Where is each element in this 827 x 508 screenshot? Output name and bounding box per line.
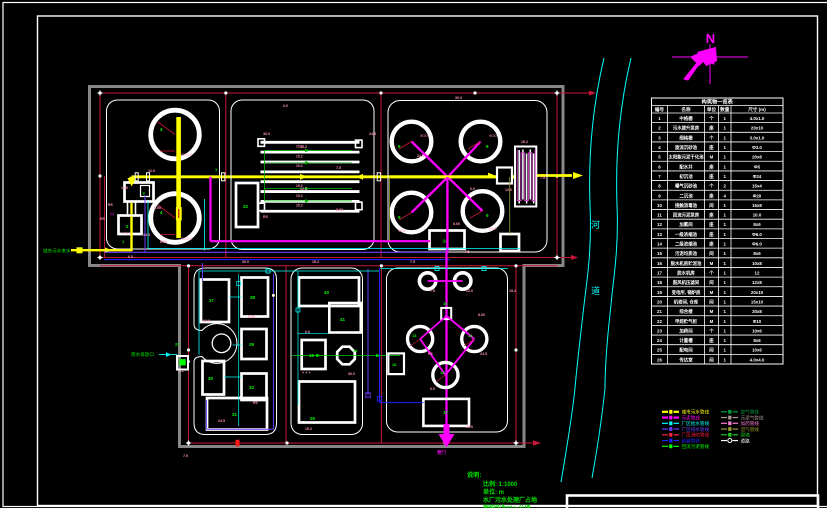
svg-text:细格栅: 细格栅 [679, 134, 693, 141]
svg-text:座: 座 [708, 337, 714, 344]
svg-text:7.5: 7.5 [540, 176, 545, 180]
svg-text:个: 个 [708, 270, 714, 276]
svg-text:8x6: 8x6 [753, 251, 761, 256]
svg-text:7.5: 7.5 [183, 454, 188, 458]
svg-text:16: 16 [657, 261, 662, 266]
svg-text:30.0: 30.0 [263, 132, 270, 136]
svg-text:23: 23 [657, 328, 662, 333]
svg-text:计量槽: 计量槽 [679, 337, 693, 344]
svg-text:8.00: 8.00 [478, 313, 485, 317]
svg-text:19: 19 [657, 290, 662, 295]
svg-text:M: M [710, 261, 714, 266]
svg-text:7.5: 7.5 [430, 289, 435, 293]
svg-text:22: 22 [657, 319, 662, 324]
svg-text:回流污泥管线: 回流污泥管线 [682, 443, 710, 450]
svg-text:二沉池: 二沉池 [679, 192, 693, 199]
svg-text:15.2: 15.2 [296, 194, 303, 198]
svg-text:比例: 1:1000: 比例: 1:1000 [483, 480, 518, 488]
svg-text:中格栅: 中格栅 [679, 115, 693, 122]
svg-text:12.0: 12.0 [466, 289, 473, 293]
svg-text:间: 间 [709, 356, 714, 363]
svg-text:16: 16 [392, 362, 397, 367]
svg-text:污泥均质池: 污泥均质池 [675, 250, 698, 257]
svg-text:10: 10 [657, 203, 662, 208]
svg-text:15.2: 15.2 [509, 289, 516, 293]
svg-text:22: 22 [243, 204, 249, 209]
svg-text:尺寸 (m): 尺寸 (m) [748, 106, 766, 113]
svg-text:15.2: 15.2 [296, 154, 303, 158]
svg-text:8.00: 8.00 [154, 206, 161, 210]
svg-text:14: 14 [468, 333, 473, 338]
svg-text:Φ20: Φ20 [420, 133, 428, 138]
svg-text:20x8: 20x8 [752, 155, 762, 160]
svg-text:二级浓缩池: 二级浓缩池 [675, 241, 698, 248]
svg-text:间: 间 [709, 347, 714, 354]
svg-text:10x8: 10x8 [752, 261, 762, 266]
svg-text:20: 20 [310, 416, 316, 421]
svg-text:12.0: 12.0 [203, 319, 210, 323]
svg-text:座: 座 [708, 163, 714, 170]
svg-text:R5: R5 [100, 217, 105, 221]
svg-text:7.5: 7.5 [410, 260, 415, 264]
svg-text:构筑物一览表: 构筑物一览表 [702, 98, 734, 106]
svg-text:初沉池: 初沉池 [679, 173, 693, 180]
svg-text:15: 15 [657, 251, 662, 256]
svg-text:Φ20: Φ20 [753, 193, 762, 198]
svg-text:间: 间 [709, 202, 714, 209]
svg-text:M: M [710, 319, 714, 324]
svg-text:40: 40 [324, 290, 330, 295]
svg-text:10x6: 10x6 [752, 328, 762, 333]
svg-text:4.0x4.0: 4.0x4.0 [750, 357, 765, 362]
svg-text:8.00: 8.00 [453, 222, 460, 226]
svg-text:一级浓缩池: 一级浓缩池 [675, 231, 698, 238]
svg-text:15.2: 15.2 [312, 260, 319, 264]
svg-text:Φ5: Φ5 [754, 164, 761, 169]
svg-text:个: 个 [708, 183, 714, 189]
svg-text:8x6: 8x6 [753, 222, 761, 227]
svg-text:12.0: 12.0 [300, 187, 307, 191]
svg-text:17: 17 [443, 410, 449, 415]
svg-text:27: 27 [209, 298, 215, 303]
svg-text:Φ24.0: Φ24.0 [181, 236, 193, 241]
svg-text:名称: 名称 [681, 106, 691, 113]
svg-text:2#: 2# [175, 342, 180, 347]
svg-text:机修间, 仓库: 机修间, 仓库 [674, 298, 699, 305]
svg-text:15.2: 15.2 [305, 427, 312, 431]
svg-text:15.2: 15.2 [521, 140, 528, 144]
svg-text:Φ20: Φ20 [489, 226, 497, 231]
svg-text:24: 24 [110, 212, 114, 216]
svg-text:20x8: 20x8 [752, 309, 762, 314]
svg-text:河: 河 [591, 219, 600, 230]
svg-text:13: 13 [412, 333, 417, 338]
svg-text:脱水机房: 脱水机房 [677, 270, 695, 277]
svg-text:Φ3.0: Φ3.0 [752, 145, 762, 150]
svg-text:水厂污水处理厂占地: 水厂污水处理厂占地 [483, 496, 537, 504]
svg-text:+·+: +·+ [179, 370, 184, 374]
svg-text:间: 间 [709, 279, 714, 286]
svg-text:10x6: 10x6 [752, 348, 762, 353]
svg-text:32: 32 [249, 385, 255, 390]
svg-text:泄门: 泄门 [437, 449, 446, 456]
svg-text:28: 28 [250, 295, 256, 300]
svg-text:16: 16 [443, 301, 448, 306]
svg-text:加氯间: 加氯间 [678, 221, 693, 228]
svg-text:30.0: 30.0 [348, 372, 355, 376]
svg-text:R5: R5 [428, 352, 433, 356]
svg-text:11: 11 [657, 213, 662, 218]
svg-text:4.0x1.0: 4.0x1.0 [750, 116, 765, 121]
svg-text:6.0: 6.0 [305, 330, 310, 334]
svg-text:Φ6.0: Φ6.0 [752, 242, 762, 247]
svg-text:接触消毒池: 接触消毒池 [674, 202, 698, 209]
svg-text:20x10: 20x10 [751, 126, 764, 131]
svg-text:25: 25 [657, 348, 662, 353]
svg-text:变电所, 锅炉房: 变电所, 锅炉房 [672, 289, 701, 296]
svg-text:单位: m: 单位: m [483, 488, 504, 496]
svg-text:12x8: 12x8 [752, 280, 762, 285]
svg-text:城市污水来水: 城市污水来水 [43, 248, 71, 255]
svg-text:座: 座 [708, 212, 714, 219]
svg-text:脱水机房贮泥池: 脱水机房贮泥池 [671, 260, 702, 267]
svg-text:13: 13 [657, 232, 662, 237]
svg-text:18: 18 [657, 280, 662, 285]
svg-text:12: 12 [755, 271, 760, 276]
svg-text:N: N [706, 31, 715, 46]
svg-text:R5: R5 [465, 250, 470, 254]
svg-text:20: 20 [657, 299, 662, 304]
svg-text:12: 12 [657, 222, 662, 227]
svg-text:加药间: 加药间 [678, 327, 693, 334]
svg-text:8.00: 8.00 [160, 240, 167, 244]
svg-text:8.00: 8.00 [336, 208, 343, 212]
svg-text:8.00: 8.00 [248, 315, 255, 319]
svg-text:R5: R5 [263, 215, 268, 219]
svg-text:说明:: 说明: [467, 471, 481, 479]
svg-text:15: 15 [440, 370, 445, 375]
svg-text:30: 30 [208, 376, 214, 381]
svg-text:座: 座 [708, 221, 714, 228]
svg-text:30.0: 30.0 [242, 260, 249, 264]
svg-text:R5: R5 [108, 203, 113, 207]
svg-text:单位: 单位 [707, 106, 717, 113]
svg-text:15x4: 15x4 [752, 184, 762, 189]
svg-text:配水井: 配水井 [679, 163, 693, 170]
svg-text:12.0: 12.0 [121, 186, 128, 190]
svg-text:间: 间 [709, 250, 714, 257]
svg-text:24.5: 24.5 [417, 154, 424, 158]
svg-text:41: 41 [340, 317, 346, 322]
svg-text:17: 17 [657, 271, 662, 276]
svg-text:29: 29 [249, 342, 255, 347]
svg-text:14: 14 [657, 242, 662, 247]
svg-text:综合楼: 综合楼 [679, 308, 693, 315]
svg-text:M: M [710, 290, 714, 295]
svg-text:24.5: 24.5 [218, 419, 225, 423]
svg-text:编号: 编号 [655, 106, 665, 113]
svg-text:20x10: 20x10 [751, 290, 764, 295]
svg-text:个: 个 [708, 134, 714, 140]
svg-text:6.0: 6.0 [128, 255, 133, 259]
svg-text:21: 21 [657, 309, 662, 314]
svg-text:M: M [710, 155, 714, 160]
svg-text:甲烷贮气柜: 甲烷贮气柜 [675, 318, 698, 325]
svg-text:15.2: 15.2 [296, 204, 303, 208]
svg-text:6.0: 6.0 [283, 104, 288, 108]
svg-text:间: 间 [709, 298, 714, 305]
svg-text:Φ10: Φ10 [753, 319, 762, 324]
svg-text:15.2: 15.2 [296, 164, 303, 168]
svg-text:Φ24: Φ24 [753, 174, 762, 179]
svg-text:鼓风机压滤间: 鼓风机压滤间 [673, 279, 700, 286]
svg-text:12.0: 12.0 [505, 188, 512, 192]
svg-text:Φ20: Φ20 [489, 133, 497, 138]
svg-text:污水提升泵房: 污水提升泵房 [673, 125, 700, 132]
svg-text:24.5: 24.5 [480, 352, 487, 356]
svg-text:15.2: 15.2 [300, 145, 307, 149]
svg-text:座: 座 [708, 241, 714, 248]
svg-text:座: 座 [708, 144, 714, 151]
svg-text:24: 24 [657, 338, 662, 343]
svg-text:6.0: 6.0 [430, 387, 435, 391]
svg-text:R5: R5 [253, 401, 258, 405]
svg-text:30.0: 30.0 [455, 96, 462, 100]
svg-text:6.0: 6.0 [470, 187, 475, 191]
svg-text:10.0: 10.0 [753, 213, 762, 218]
svg-text:座: 座 [708, 192, 714, 199]
svg-text:数量: 数量 [720, 106, 730, 113]
svg-text:Φ24.0: Φ24.0 [181, 152, 193, 157]
svg-text:座: 座 [708, 125, 714, 132]
svg-text:传达室: 传达室 [678, 356, 693, 363]
svg-text:15x10: 15x10 [751, 299, 764, 304]
svg-text:Φ20: Φ20 [398, 228, 406, 233]
svg-text:旋流沉砂池: 旋流沉砂池 [674, 144, 698, 151]
svg-text:12: 12 [353, 348, 358, 353]
svg-text:+ + +: + + + [122, 231, 132, 236]
svg-text:座: 座 [708, 173, 714, 180]
svg-text:15x8: 15x8 [752, 203, 762, 208]
svg-text:个: 个 [708, 327, 714, 333]
svg-text:24.5: 24.5 [369, 132, 376, 136]
svg-text:太阳能污泥干化池: 太阳能污泥干化池 [667, 154, 704, 161]
svg-text:雨水排放口: 雨水排放口 [131, 351, 154, 358]
svg-text:31: 31 [232, 412, 238, 417]
svg-text:3.0x1.0: 3.0x1.0 [750, 135, 765, 140]
svg-text:8x6: 8x6 [753, 338, 761, 343]
svg-text:12.0: 12.0 [148, 169, 155, 173]
svg-text:7.5: 7.5 [336, 166, 341, 170]
svg-text:个: 个 [708, 115, 714, 121]
svg-text:道: 道 [591, 285, 600, 296]
svg-text:道路: 道路 [741, 437, 751, 444]
svg-text:26: 26 [657, 357, 662, 362]
svg-text:30.0: 30.0 [466, 425, 473, 429]
svg-text:曝气沉砂池: 曝气沉砂池 [675, 183, 698, 190]
svg-text:+ + +: + + + [302, 371, 310, 375]
svg-text:座: 座 [708, 231, 714, 238]
svg-text:Φ6.0: Φ6.0 [752, 232, 762, 237]
svg-text:24.5: 24.5 [143, 233, 150, 237]
svg-text:配电间: 配电间 [679, 347, 693, 354]
svg-text:M: M [710, 309, 714, 314]
svg-text:回流污泥泵房: 回流污泥泵房 [673, 212, 700, 219]
